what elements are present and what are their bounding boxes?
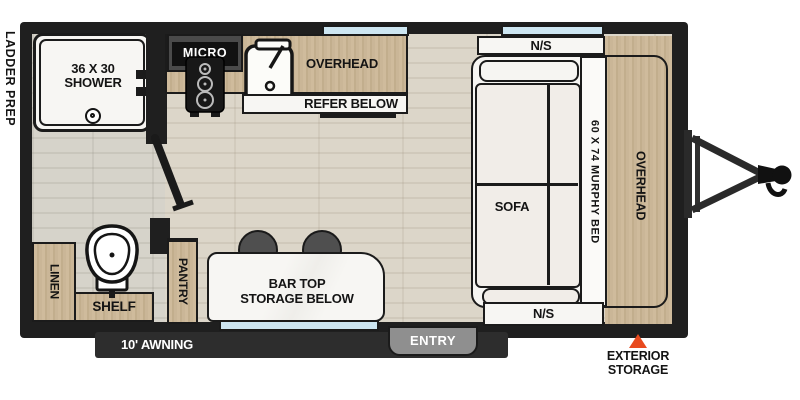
kitchen-overhead-label: OVERHEAD xyxy=(302,56,382,71)
shower-label: SHOWER xyxy=(48,76,138,90)
shower-size-label: 36 X 30 xyxy=(48,62,138,76)
linen-label: LINEN xyxy=(34,244,74,320)
ladder-prep-label: LADDER PREP xyxy=(0,28,19,130)
bathroom-door-icon xyxy=(140,130,200,225)
bed-overhead-label: OVERHEAD xyxy=(627,128,653,243)
refer-below-label: REFER BELOW xyxy=(304,97,398,111)
refer-below-band: REFER BELOW xyxy=(242,94,408,114)
shower-drain-icon xyxy=(85,108,101,124)
entry-door-tab: ENTRY xyxy=(388,326,478,356)
awning-label: 10' AWNING xyxy=(97,332,217,358)
murphy-bed-label: 60 X 74 MURPHY BED xyxy=(582,58,605,305)
stove-icon xyxy=(183,54,227,120)
exterior-storage-label-1: EXTERIOR xyxy=(591,350,685,364)
bar-top-label-1: BAR TOP xyxy=(227,276,367,291)
nightstand-top: N/S xyxy=(477,36,605,55)
entry-label: ENTRY xyxy=(410,334,456,348)
ns-top-label: N/S xyxy=(530,39,551,53)
ns-bottom-label: N/S xyxy=(533,307,554,321)
sofa-label: SOFA xyxy=(477,199,547,215)
window-bed xyxy=(501,25,604,36)
floorplan-canvas: LADDER PREP 36 X 30 SHOWER MICRO xyxy=(0,0,800,400)
refer-front-edge xyxy=(320,113,396,118)
hitch-icon xyxy=(670,118,798,230)
sofa-cushions xyxy=(475,83,581,288)
exterior-storage-arrow-icon xyxy=(629,334,647,348)
bath-wall-upper xyxy=(146,26,167,144)
pantry-label: PANTRY xyxy=(169,240,196,322)
bar-top-label-2: STORAGE BELOW xyxy=(227,291,367,306)
exterior-storage-label-2: STORAGE xyxy=(591,364,685,378)
toilet-icon xyxy=(80,222,144,302)
bed-headboard xyxy=(479,60,579,82)
sofa-seat-divider xyxy=(477,183,578,186)
nightstand-bottom: N/S xyxy=(483,302,604,326)
